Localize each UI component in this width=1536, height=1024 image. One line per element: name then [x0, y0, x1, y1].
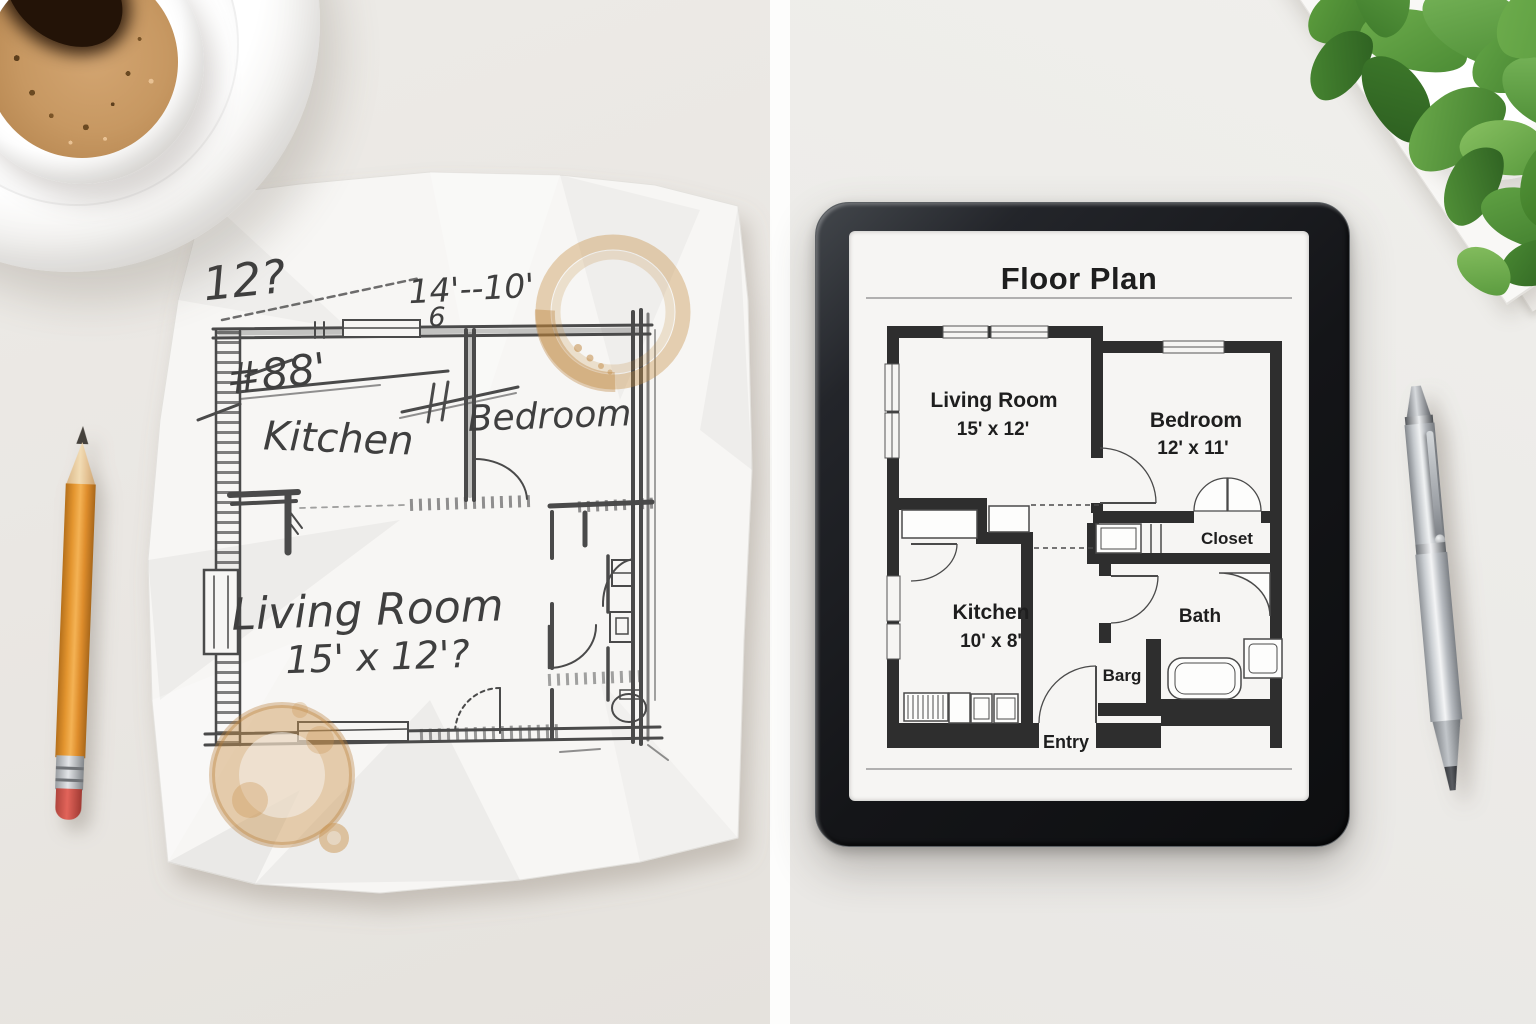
sketch-dim-6: 6 [428, 302, 445, 333]
pen-writing-tip [1443, 766, 1461, 791]
label-bath: Bath [1179, 606, 1221, 627]
desk-scene-photo: 12? 14'--10' 6 #88' Kitchen Bedroom Livi… [0, 0, 1536, 1024]
label-living-room-dim: 15' x 12' [957, 419, 1029, 440]
label-kitchen-dim: 10' x 8' [960, 631, 1022, 652]
pen-cap-tip [1404, 385, 1431, 417]
pencil-ferrule [55, 755, 84, 790]
pen-taper [1433, 719, 1465, 767]
sketch-dim-12: 12? [200, 249, 288, 311]
label-entry: Entry [1043, 732, 1089, 752]
label-kitchen: Kitchen [952, 601, 1029, 624]
label-barg: Barg [1103, 666, 1142, 685]
sketch-label-kitchen: Kitchen [263, 413, 415, 464]
coffee-surface [0, 0, 178, 158]
pencil-lead-tip [76, 426, 89, 444]
pencil-eraser [55, 788, 82, 820]
pencil-wood-cone [66, 441, 98, 486]
floorplan-title: Floor Plan [1001, 261, 1158, 296]
sketch-dim-14-10: 14'--10' [407, 266, 535, 312]
label-bedroom-dim: 12' x 11' [1157, 438, 1228, 459]
tablet-screen: Floor Plan [849, 231, 1309, 801]
label-bedroom: Bedroom [1150, 409, 1242, 432]
label-living-room: Living Room [930, 389, 1057, 412]
plan-windows [885, 326, 1224, 659]
tablet: Floor Plan [815, 202, 1350, 847]
tablet-floorplan-app: Floor Plan [849, 231, 1309, 801]
photo-split-divider [770, 0, 790, 1024]
sketch-label-living-dim: 15' x 12'? [285, 632, 471, 682]
label-closet: Closet [1201, 529, 1253, 548]
sketch-label-bedroom: Bedroom [467, 393, 632, 440]
